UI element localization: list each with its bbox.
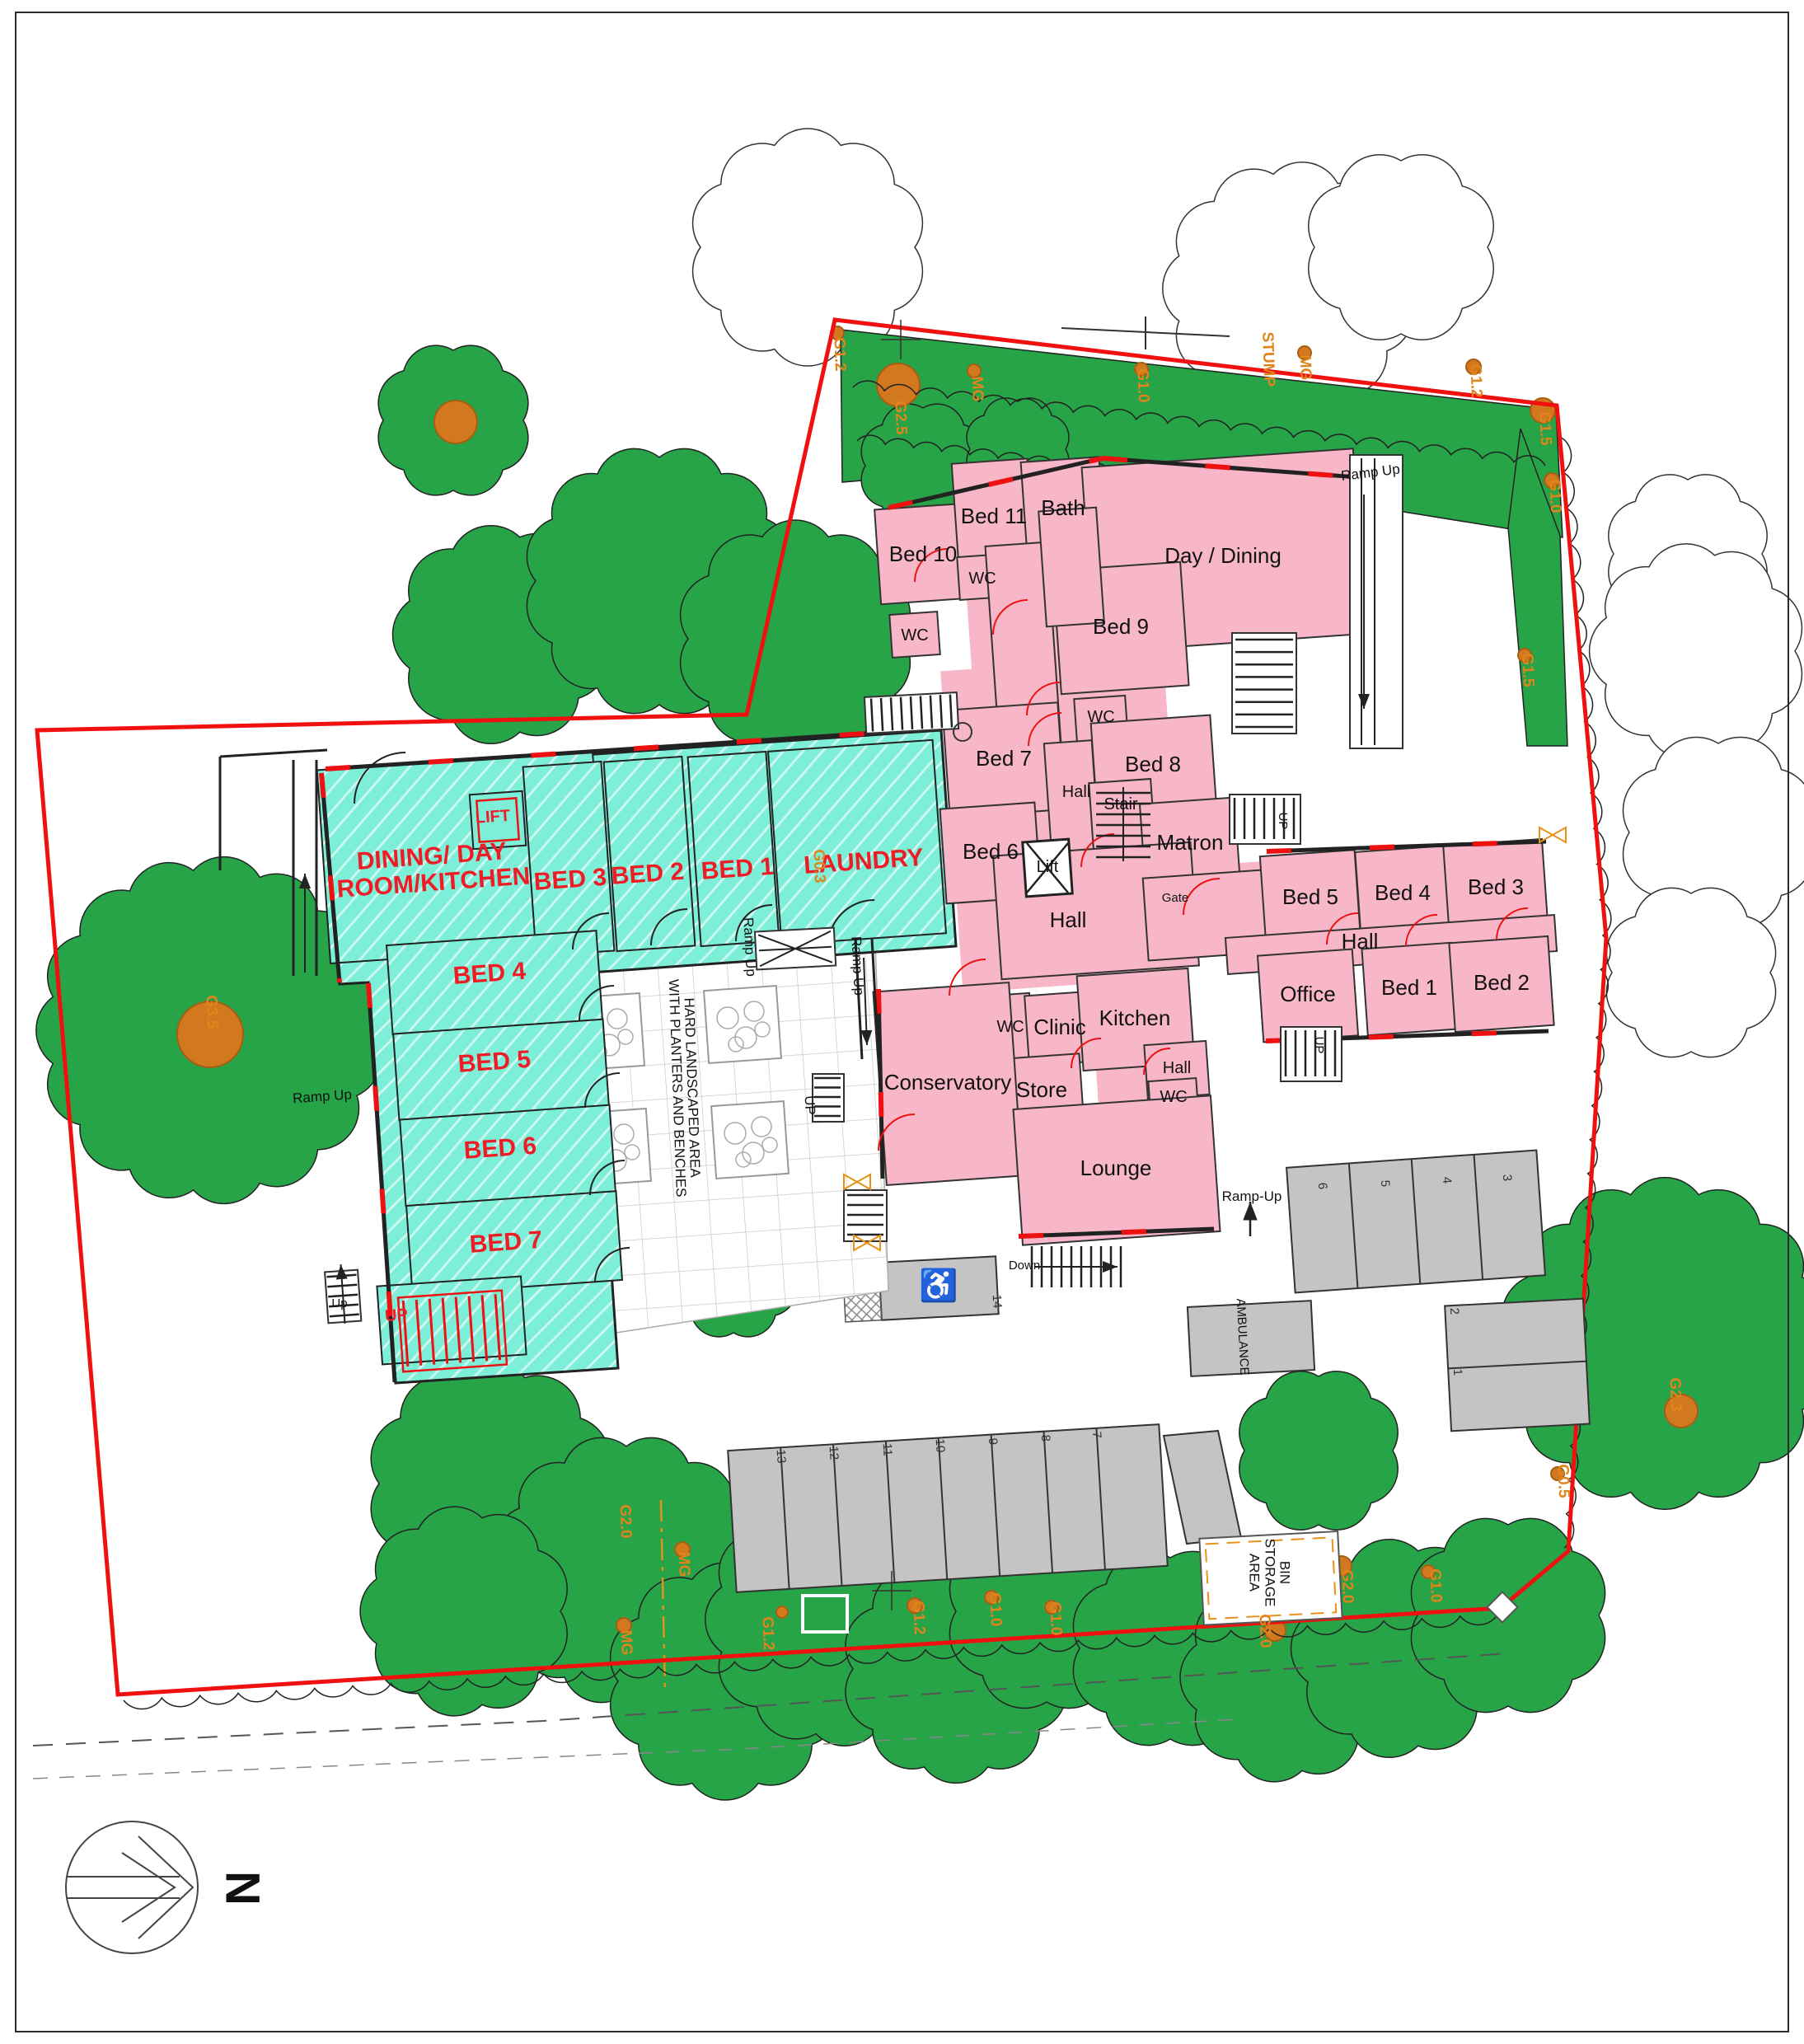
parking-9: 9 [986, 1437, 1000, 1445]
room-bed5: Bed 5 [1282, 885, 1338, 908]
room-day-dining: Day / Dining [1164, 544, 1282, 567]
parking-8: 8 [1038, 1434, 1052, 1442]
room-bed3: Bed 3 [1468, 875, 1524, 898]
anno-ramp-up-court-1: Ramp Up [740, 917, 758, 977]
room-bed7: Bed 7 [976, 747, 1032, 770]
room-bed3-a: BED 3 [533, 865, 607, 896]
anno-gate: Gate [1162, 892, 1189, 905]
room-lift: Lift [1037, 859, 1059, 877]
parking-6: 6 [1315, 1182, 1329, 1189]
room-hall-1: Hall [1062, 784, 1090, 802]
tree-mg-n1: MG [968, 376, 986, 401]
parking-3: 3 [1500, 1174, 1514, 1181]
room-matron: Matron [1157, 831, 1224, 854]
room-hall-3: Hall [1342, 930, 1379, 953]
tree-g2-5-n: G2.5 [891, 401, 909, 435]
north-letter: N [216, 1871, 268, 1906]
tree-g1-0-s2: G1.0 [1046, 1601, 1064, 1636]
tree-g1-2-ne: G1.2 [1466, 363, 1484, 398]
room-store: Store [1016, 1078, 1067, 1101]
room-lift-a: LIFT [475, 808, 511, 827]
room-bed6: Bed 6 [963, 840, 1019, 863]
room-bed2-a: BED 2 [611, 859, 685, 890]
room-hall-2: Hall [1050, 908, 1087, 931]
anno-up-east: UP [1312, 1037, 1325, 1054]
room-wc-4: WC [996, 1019, 1024, 1037]
room-conservatory: Conservatory [884, 1071, 1012, 1094]
anno-down: Down [1009, 1259, 1040, 1273]
tree-g2-0-se2: G2.0 [1255, 1614, 1273, 1648]
room-clinic: Clinic [1033, 1015, 1086, 1038]
anno-up-west: Up [331, 1297, 347, 1310]
room-bed7-a: BED 7 [469, 1227, 543, 1259]
anno-ramp-up-court-2: Ramp Up [848, 936, 866, 996]
parking-7: 7 [1089, 1431, 1103, 1438]
anno-ramp-up-west: Ramp Up [293, 1087, 353, 1106]
tree-g2-0-sw: G2.0 [616, 1504, 634, 1539]
tree-mg-n2: MG [1296, 354, 1314, 380]
room-lounge: Lounge [1080, 1156, 1152, 1179]
tree-g1-2-s2: G1.2 [909, 1601, 927, 1635]
tree-g1-2-nw: G1.2 [830, 337, 848, 372]
anno-up-a: UP [384, 1306, 408, 1325]
anno-ramp-up-south: Ramp-Up [1222, 1189, 1282, 1204]
parking-14: 14 [989, 1294, 1003, 1309]
room-bed4-a: BED 4 [452, 959, 527, 990]
anno-ramp-up-north: Ramp Up [1340, 462, 1401, 485]
tree-mg-sw2: MG [616, 1629, 635, 1655]
room-wc-2: WC [901, 627, 928, 645]
room-wc-1: WC [968, 570, 996, 588]
tree-g1-0-ne: G1.0 [1545, 479, 1563, 513]
room-bed10: Bed 10 [889, 542, 957, 565]
parking-4: 4 [1440, 1176, 1454, 1184]
tree-g2-3-se: G2.3 [1666, 1377, 1684, 1412]
room-wc-5: WC [1160, 1089, 1187, 1107]
tree-g2-0-se1: G2.0 [1338, 1569, 1356, 1604]
parking-12: 12 [826, 1446, 840, 1460]
parking-5: 5 [1378, 1179, 1392, 1187]
room-bed1-a: BED 1 [701, 854, 775, 885]
room-bed1: Bed 1 [1381, 976, 1437, 999]
room-stair: Stair [1103, 796, 1137, 814]
tree-g1-0-s1: G1.0 [986, 1592, 1004, 1627]
room-office: Office [1280, 982, 1335, 1006]
tree-g0-3: G0.3 [809, 849, 827, 884]
tree-stump: STUMP [1258, 331, 1277, 387]
tree-g1-0-se: G1.0 [1426, 1568, 1444, 1603]
site-plan-page: Bed 10Bed 11BathDay / DiningWCWCBed 9Bed… [0, 0, 1804, 2044]
parking-2: 2 [1447, 1307, 1461, 1315]
anno-up-north: UP [1276, 813, 1289, 830]
anno-up-court: UP [801, 1095, 818, 1116]
room-bed9: Bed 9 [1093, 615, 1149, 638]
anno-ambulance: AMBULANCE [1233, 1298, 1250, 1376]
parking-13: 13 [773, 1449, 787, 1464]
room-bed6-a: BED 6 [463, 1133, 537, 1165]
parking-10: 10 [932, 1438, 946, 1453]
room-bath: Bath [1041, 496, 1085, 519]
anno-bin-storage: BIN STORAGE AREA [1246, 1539, 1291, 1607]
tree-g1-5-ne: G1.5 [1535, 411, 1553, 446]
room-bed5-a: BED 5 [457, 1047, 532, 1078]
room-bed8: Bed 8 [1125, 752, 1181, 776]
room-bed11: Bed 11 [961, 504, 1027, 527]
tree-g1-0-n1: G1.0 [1133, 368, 1151, 403]
tree-g1-2-s1: G1.2 [758, 1616, 776, 1651]
parking-1: 1 [1450, 1368, 1464, 1376]
room-bed2: Bed 2 [1474, 971, 1530, 994]
parking-11: 11 [880, 1443, 894, 1456]
labels-layer: Bed 10Bed 11BathDay / DiningWCWCBed 9Bed… [0, 0, 1804, 2044]
room-bed4: Bed 4 [1375, 881, 1431, 904]
room-dining-day: DINING/ DAY ROOM/KITCHEN [335, 837, 532, 903]
room-kitchen: Kitchen [1099, 1006, 1171, 1029]
room-wc-3: WC [1087, 709, 1114, 727]
icon-wheelchair: ♿ [919, 1269, 958, 1303]
tree-mg-sw1: MG [674, 1551, 692, 1577]
anno-hard-landscaped: HARD LANDSCAPED AREA WITH PLANTERS AND B… [665, 978, 703, 1198]
room-hall-4: Hall [1163, 1060, 1191, 1078]
tree-g0-5-se: G0.5 [1553, 1464, 1572, 1498]
tree-g3-5-w: G3.5 [202, 995, 220, 1029]
tree-g1-5-e: G1.5 [1518, 653, 1536, 687]
